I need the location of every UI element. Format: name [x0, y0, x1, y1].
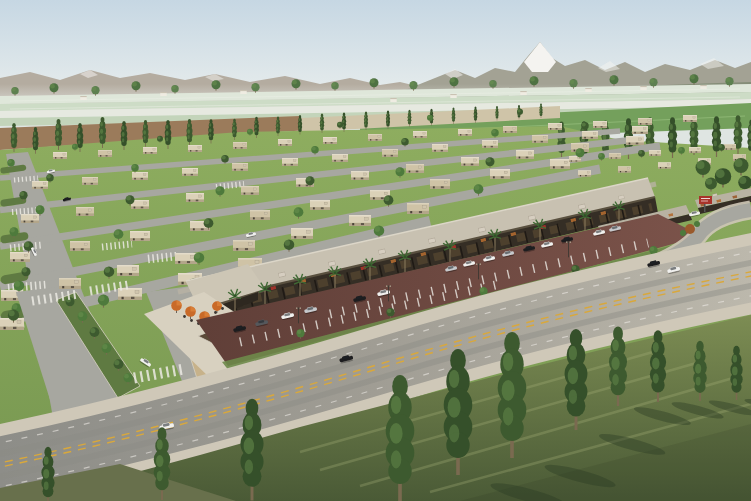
sign-text-line: [701, 198, 710, 199]
house: [578, 170, 591, 177]
sign-board: [699, 196, 712, 204]
house: [618, 166, 631, 173]
house: [232, 163, 248, 171]
house: [233, 240, 255, 251]
house: [503, 126, 517, 133]
crosswalk: [8, 285, 46, 288]
house: [188, 145, 202, 152]
house: [332, 154, 348, 162]
house: [430, 179, 450, 189]
house: [582, 131, 598, 139]
farm-building: [585, 88, 591, 92]
house: [143, 147, 157, 154]
house: [407, 203, 429, 214]
house: [10, 252, 30, 262]
house: [458, 129, 472, 136]
farm-building: [700, 85, 706, 89]
person: [190, 319, 193, 322]
house: [76, 207, 94, 216]
house: [482, 140, 498, 148]
house: [21, 214, 39, 223]
island-tree: [680, 230, 686, 236]
farm-building: [80, 96, 86, 100]
farm-building: [450, 94, 456, 98]
house: [548, 123, 562, 130]
house: [278, 139, 292, 146]
house: [59, 278, 81, 289]
house: [291, 228, 313, 239]
house: [241, 186, 259, 195]
farm-building: [160, 92, 166, 96]
farm-building: [240, 90, 246, 94]
house: [250, 210, 270, 220]
house: [32, 181, 48, 189]
house: [117, 265, 139, 276]
house: [638, 118, 652, 125]
house: [368, 134, 382, 141]
house: [413, 131, 427, 138]
person: [221, 307, 224, 310]
house: [182, 168, 198, 176]
house: [282, 158, 298, 166]
house: [461, 157, 479, 166]
house: [130, 231, 150, 241]
house: [351, 171, 369, 180]
sign-text-line: [701, 201, 708, 202]
sign-post: [704, 204, 706, 212]
person: [214, 311, 217, 314]
house: [550, 159, 570, 169]
island-tree: [694, 221, 700, 227]
house: [132, 172, 148, 180]
house: [649, 150, 661, 156]
house: [406, 164, 424, 173]
house: [82, 177, 98, 185]
house: [724, 144, 736, 150]
aerial-render-canvas: Aerial architectural rendering of a mast…: [0, 0, 751, 501]
farm-building: [640, 86, 646, 90]
house: [175, 253, 197, 264]
house: [432, 144, 448, 152]
house: [689, 147, 701, 153]
house: [70, 241, 90, 251]
house: [626, 136, 644, 145]
house: [233, 142, 247, 149]
house: [382, 149, 398, 157]
house: [658, 162, 671, 169]
house: [98, 150, 112, 157]
house: [53, 152, 67, 159]
farm-building: [390, 98, 396, 102]
house: [310, 200, 330, 210]
rust-accent-tree: [685, 224, 695, 234]
house: [683, 115, 697, 122]
person: [183, 315, 186, 318]
house: [323, 137, 337, 144]
house: [632, 126, 648, 134]
house: [186, 193, 204, 202]
house: [349, 215, 371, 226]
farm-building: [520, 91, 526, 95]
house: [490, 169, 510, 179]
house: [593, 121, 607, 128]
house: [516, 150, 534, 159]
house: [532, 135, 548, 143]
house: [609, 153, 621, 159]
